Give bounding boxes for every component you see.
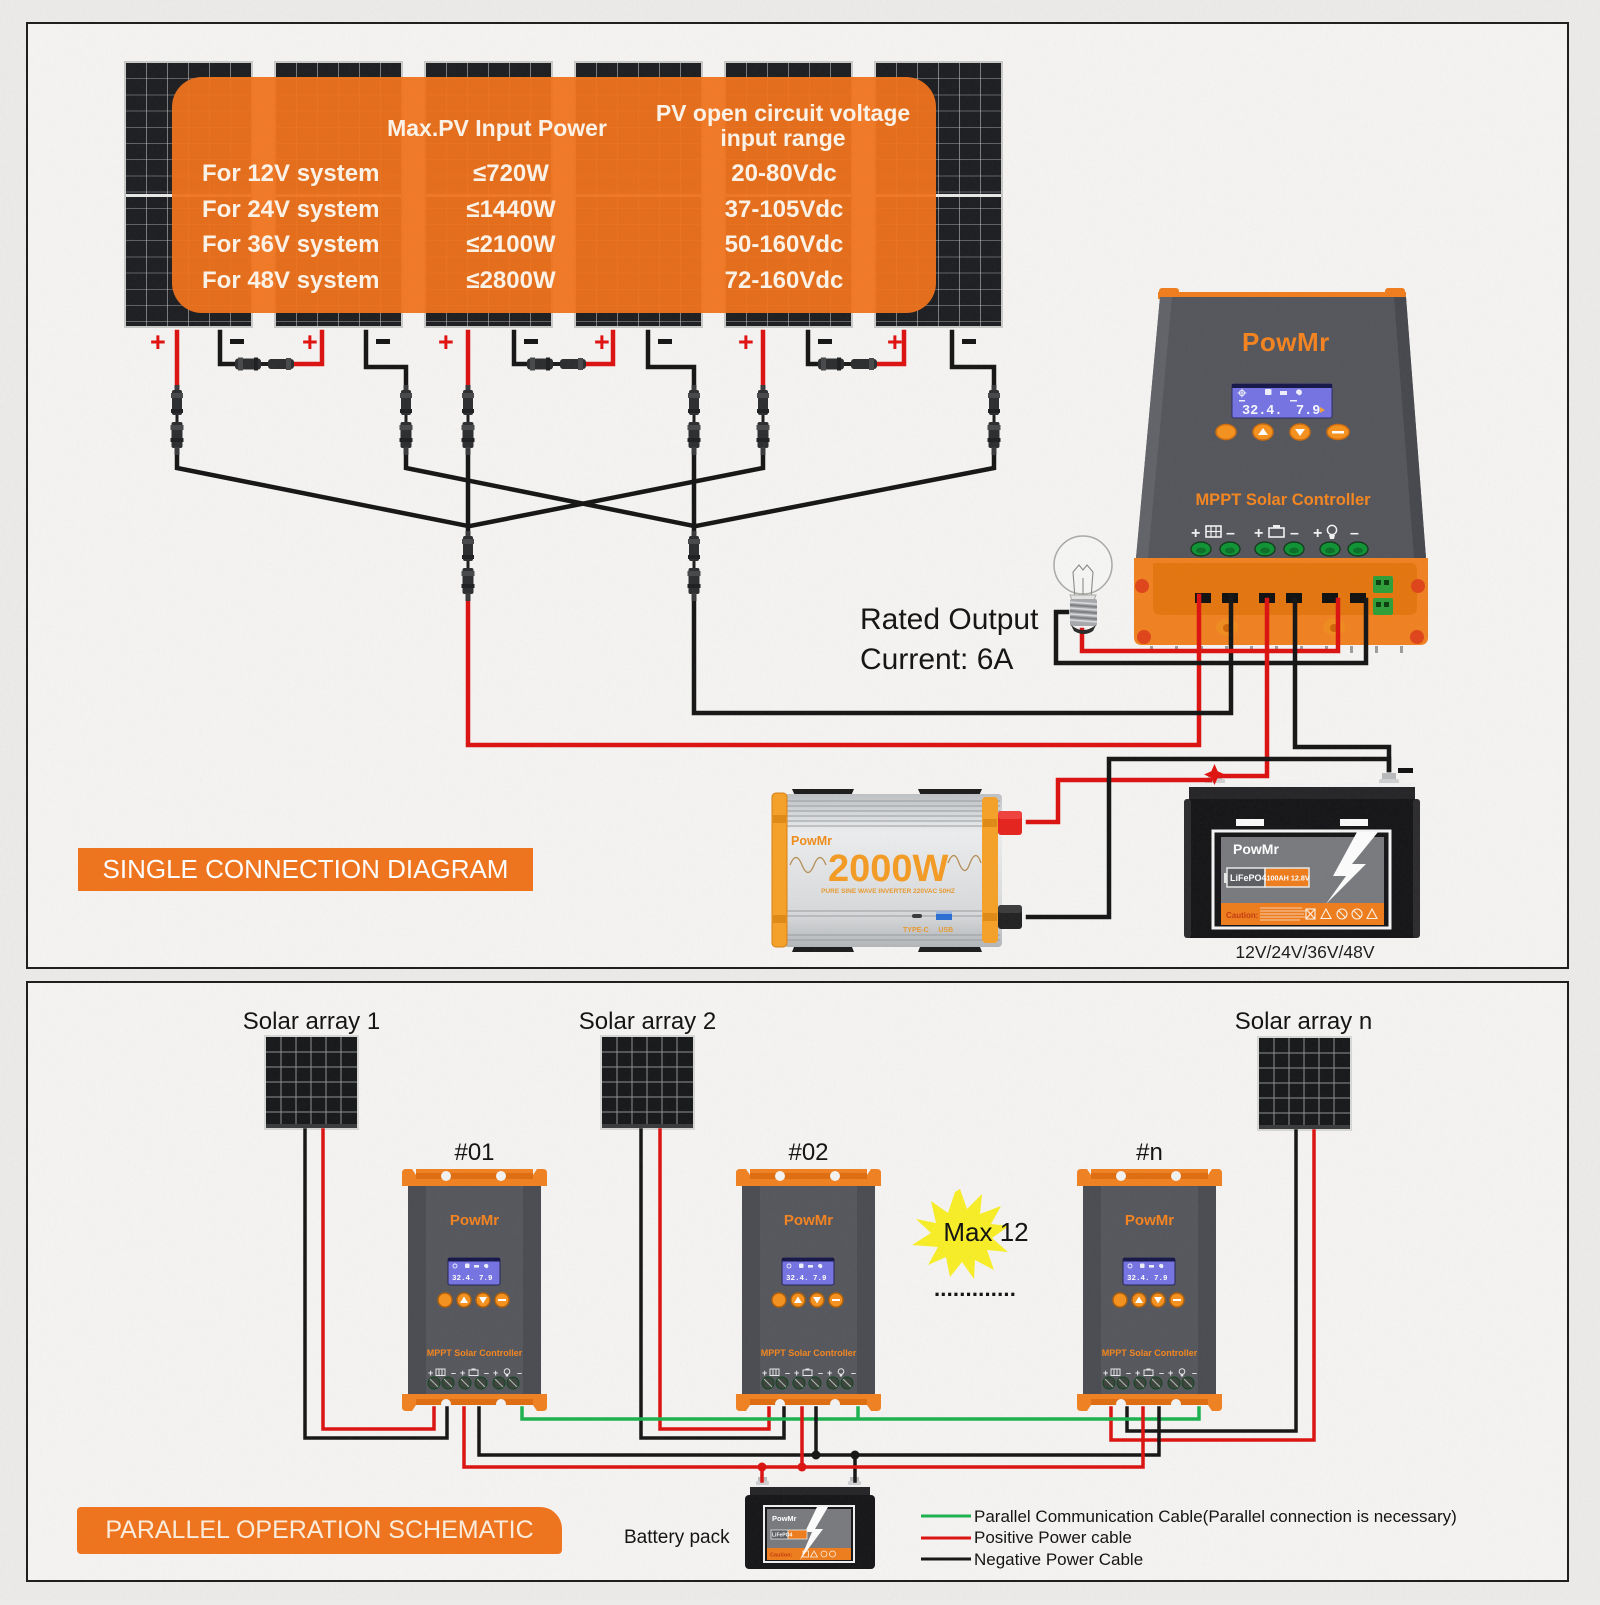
svg-text:+: +: [1254, 525, 1263, 542]
svg-text:+: +: [1313, 525, 1322, 542]
svg-text:LiFePO4: LiFePO4: [1230, 873, 1267, 883]
svg-text:32.4.: 32.4.: [1242, 404, 1283, 419]
svg-text:PowMr: PowMr: [1233, 841, 1279, 857]
svg-text:Caution:: Caution:: [1226, 911, 1258, 920]
svg-text:7.9: 7.9: [1296, 404, 1320, 419]
svg-text:100AH 12.8V: 100AH 12.8V: [1267, 874, 1310, 883]
svg-text:–: –: [1290, 525, 1299, 542]
svg-text:PowMr: PowMr: [772, 1514, 797, 1523]
svg-text:–: –: [1226, 525, 1235, 542]
svg-text:Caution:: Caution:: [770, 1553, 792, 1559]
svg-text:+: +: [1191, 525, 1200, 542]
svg-text:–: –: [1350, 525, 1359, 542]
svg-text:LiFePO4: LiFePO4: [772, 1533, 793, 1539]
